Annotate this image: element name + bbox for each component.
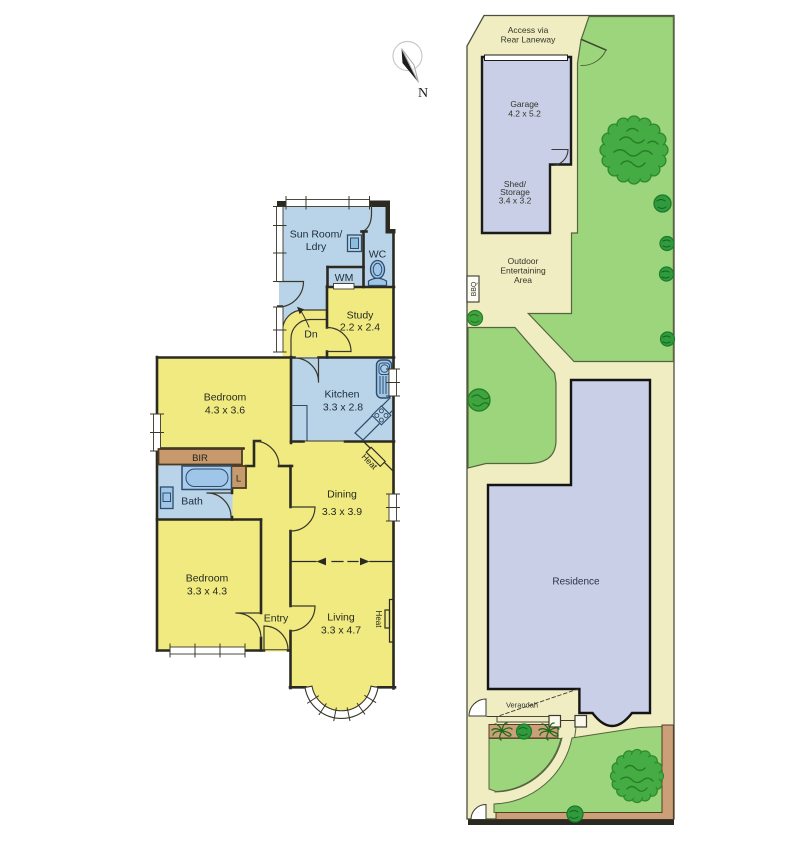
svg-text:Living: Living — [327, 612, 355, 624]
svg-text:Bedroom: Bedroom — [186, 573, 229, 585]
svg-text:BBQ: BBQ — [471, 281, 478, 296]
svg-text:3.3 x 3.9: 3.3 x 3.9 — [322, 506, 362, 518]
svg-text:2.2 x 2.4: 2.2 x 2.4 — [340, 322, 380, 334]
svg-text:Residence: Residence — [552, 577, 600, 588]
svg-text:Sun Room/: Sun Room/ — [290, 229, 343, 241]
svg-text:Area: Area — [514, 275, 532, 285]
svg-text:3.4 x 3.2: 3.4 x 3.2 — [499, 196, 532, 206]
svg-text:WM: WM — [335, 272, 354, 284]
svg-text:Bedroom: Bedroom — [204, 392, 247, 404]
svg-text:3.3 x 4.3: 3.3 x 4.3 — [187, 586, 227, 598]
svg-text:Heat: Heat — [374, 611, 383, 629]
svg-text:WC: WC — [369, 249, 387, 261]
svg-text:Kitchen: Kitchen — [324, 389, 359, 401]
svg-text:Dn: Dn — [304, 329, 318, 341]
svg-text:Garage: Garage — [510, 99, 539, 109]
svg-text:Entertaining: Entertaining — [500, 266, 546, 276]
svg-text:Bath: Bath — [181, 496, 203, 508]
svg-text:L: L — [236, 474, 241, 485]
svg-text:N: N — [418, 86, 428, 101]
svg-text:3.3 x 2.8: 3.3 x 2.8 — [323, 402, 363, 414]
svg-text:Access via: Access via — [508, 25, 549, 35]
svg-text:BIR: BIR — [192, 453, 208, 464]
svg-text:Dining: Dining — [327, 489, 357, 501]
svg-text:4.3 x 3.6: 4.3 x 3.6 — [205, 405, 245, 417]
svg-text:Ldry: Ldry — [306, 241, 327, 253]
svg-text:3.3 x 4.7: 3.3 x 4.7 — [321, 625, 361, 637]
svg-text:Study: Study — [347, 310, 375, 322]
svg-text:Entry: Entry — [264, 613, 289, 625]
svg-text:Verandah: Verandah — [506, 701, 538, 710]
svg-text:4.2 x 5.2: 4.2 x 5.2 — [508, 109, 541, 119]
svg-text:Outdoor: Outdoor — [508, 256, 539, 266]
svg-text:Rear Laneway: Rear Laneway — [501, 35, 557, 45]
